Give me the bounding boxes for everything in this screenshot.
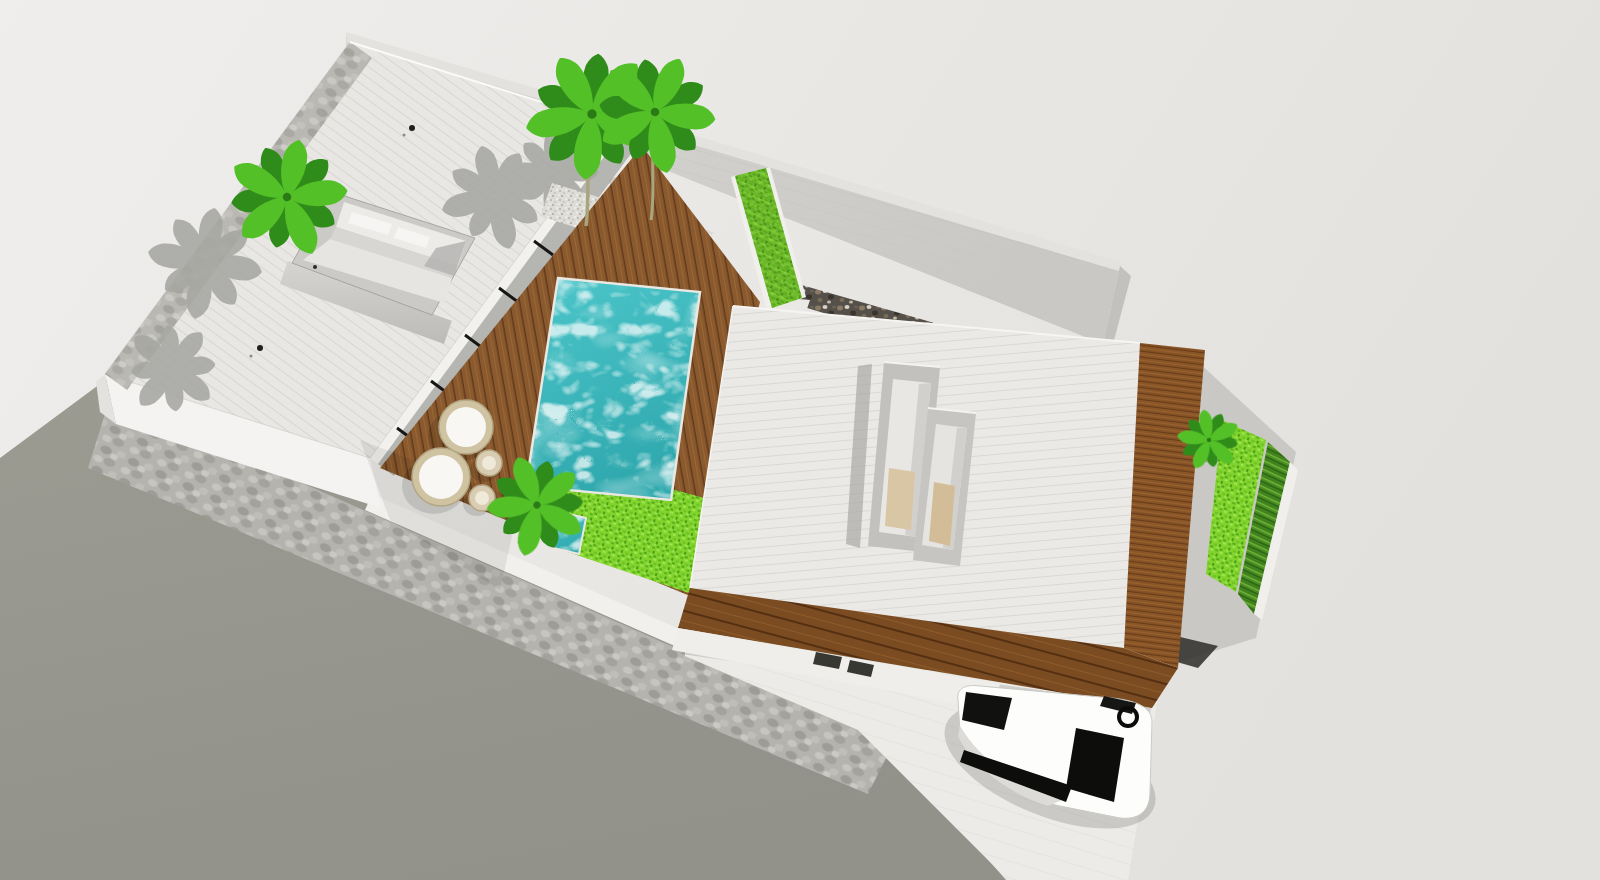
daybed-cushion bbox=[446, 407, 486, 447]
daybed-cushion bbox=[419, 455, 463, 499]
roof-drain-dot bbox=[409, 125, 415, 131]
rattan-table-top bbox=[475, 491, 489, 505]
roof-drain-dot bbox=[257, 345, 263, 351]
roof-drain-mark bbox=[250, 355, 253, 358]
pool bbox=[526, 278, 700, 500]
main-house bbox=[672, 306, 1205, 710]
architectural-render bbox=[0, 0, 1600, 880]
render-viewport bbox=[0, 0, 1600, 880]
skylight-floor-view bbox=[885, 468, 915, 530]
rattan-table-top bbox=[482, 456, 496, 470]
roof-dot bbox=[313, 265, 317, 269]
roof-drain-mark bbox=[403, 134, 406, 137]
